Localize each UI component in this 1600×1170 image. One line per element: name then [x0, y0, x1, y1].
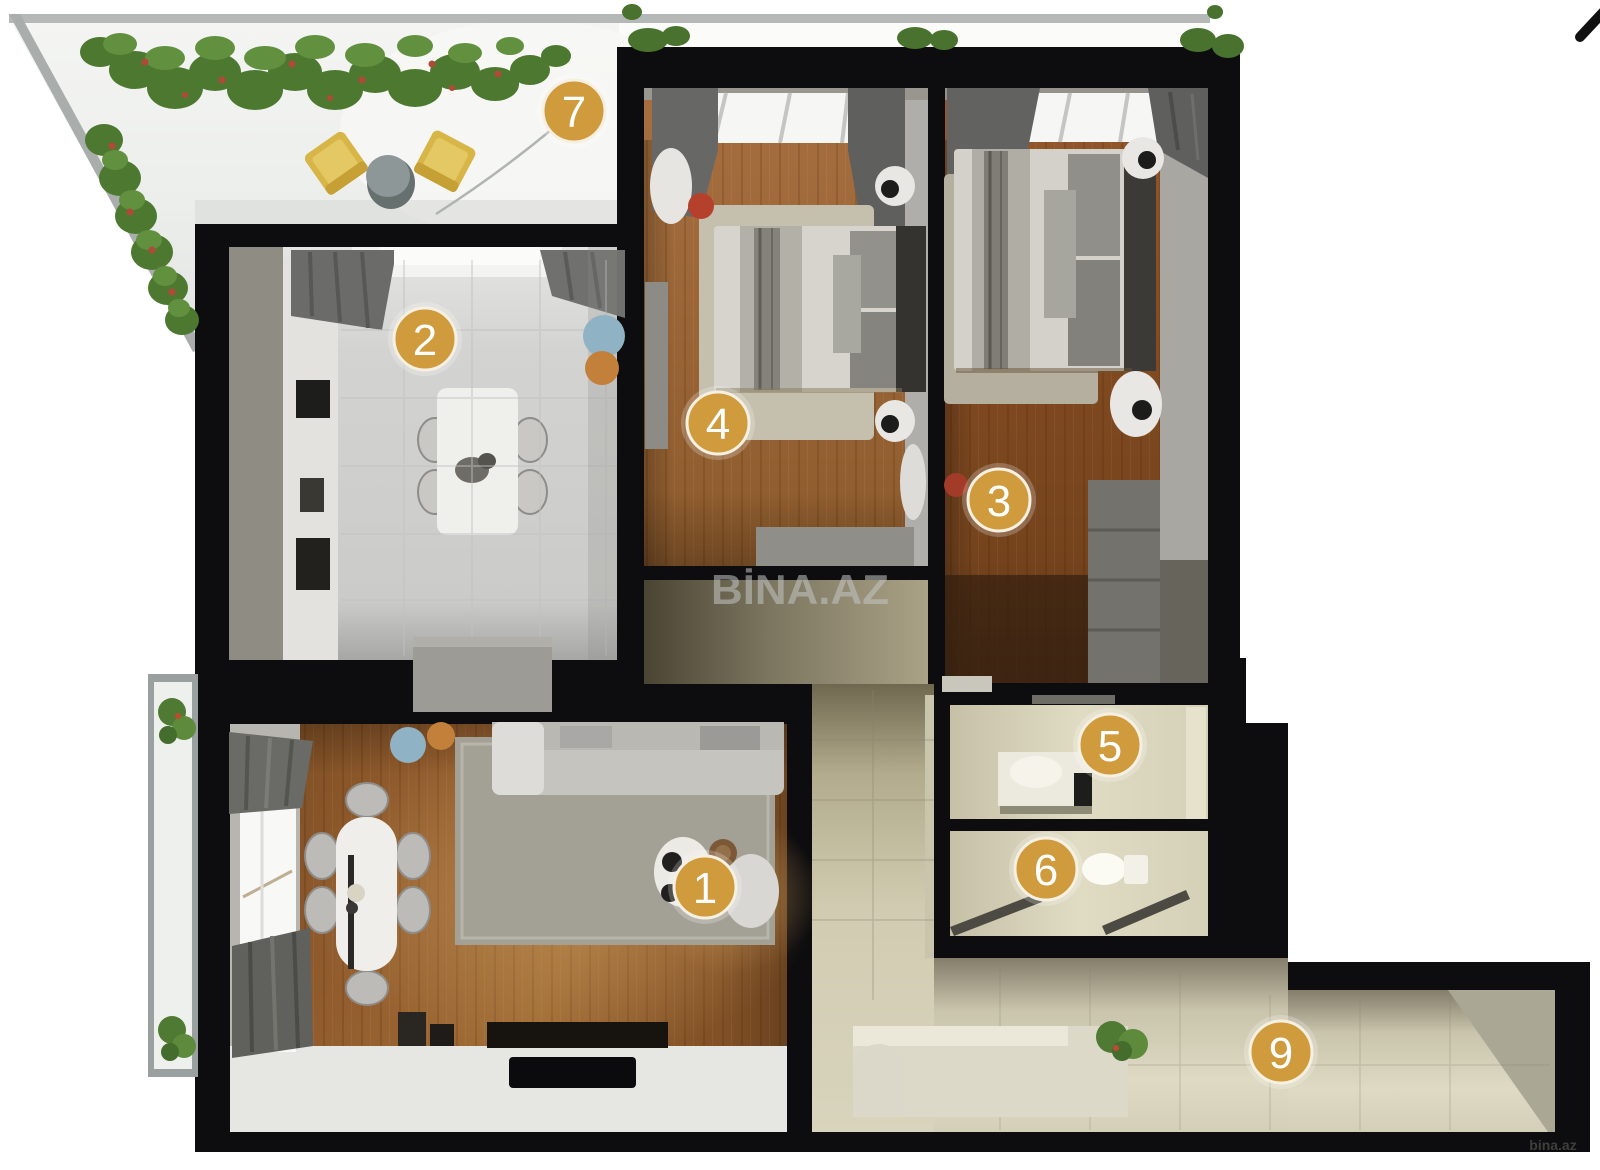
svg-text:5: 5: [1098, 722, 1122, 771]
svg-text:bina.az: bina.az: [1529, 1137, 1576, 1153]
svg-text:6: 6: [1034, 846, 1058, 895]
svg-text:4: 4: [706, 400, 730, 449]
svg-text:1: 1: [693, 864, 717, 913]
svg-text:3: 3: [987, 477, 1011, 526]
svg-text:BİNA.AZ: BİNA.AZ: [711, 566, 889, 613]
svg-text:7: 7: [562, 88, 586, 137]
svg-text:9: 9: [1269, 1029, 1293, 1078]
svg-text:2: 2: [413, 316, 437, 365]
